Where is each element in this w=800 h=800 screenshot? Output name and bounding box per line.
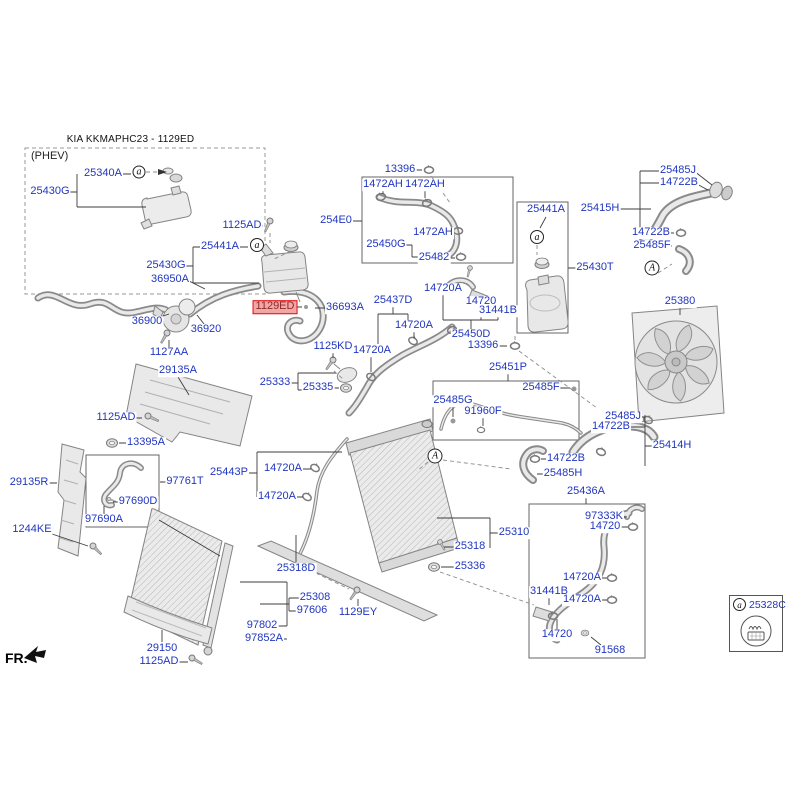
part-label-97690a: 97690A — [84, 514, 124, 526]
legend-row: a 25328C — [730, 596, 782, 611]
part-label-25380: 25380 — [664, 296, 697, 308]
part-label-14720: 14720 — [589, 521, 622, 533]
part-label-14722b: 14722B — [546, 453, 586, 465]
part-label-25441a: 25441A — [200, 241, 240, 253]
part-label-25310: 25310 — [498, 527, 531, 539]
part-label-25308: 25308 — [299, 592, 332, 604]
part-label-25318d: 25318D — [276, 563, 317, 575]
legend-callout-marker: a — [733, 598, 746, 611]
part-label-14720a: 14720A — [562, 572, 602, 584]
part-label-97690d: 97690D — [118, 496, 159, 508]
labels-layer: KIA KKMAPHC23 - 1129ED (PHEV) FR. a 2532… — [0, 0, 800, 800]
part-label-25443p: 25443P — [209, 467, 249, 479]
part-label-36900: 36900 — [131, 316, 164, 328]
part-label-1125ad: 1125AD — [96, 412, 137, 424]
part-label-14720a: 14720A — [352, 345, 392, 357]
part-label-25335: 25335 — [302, 382, 335, 394]
legend-box: a 25328C — [729, 595, 783, 652]
part-label-25485f: 25485F — [632, 240, 671, 252]
part-label-36693a: 36693A — [325, 302, 365, 314]
parts-diagram: KIA KKMAPHC23 - 1129ED (PHEV) FR. a 2532… — [0, 0, 800, 800]
part-label-1472ah: 1472AH — [412, 227, 454, 239]
part-label-25441a: 25441A — [526, 204, 566, 216]
part-label-91960f: 91960F — [463, 406, 502, 418]
part-label-97761t: 97761T — [165, 476, 204, 488]
callout-marker-a: a — [133, 166, 146, 179]
part-label-36920: 36920 — [190, 324, 223, 336]
part-label-25336: 25336 — [454, 561, 487, 573]
part-label-36950a: 36950A — [150, 274, 190, 286]
part-label-25485f: 25485F — [521, 382, 560, 394]
part-label-14720a: 14720A — [562, 594, 602, 606]
part-label-97802: 97802 — [246, 620, 279, 632]
part-label-25485j: 25485J — [659, 165, 697, 177]
part-label-25333: 25333 — [259, 377, 292, 389]
part-label-97852a: 97852A — [244, 633, 284, 645]
part-label-14722b: 14722B — [631, 227, 671, 239]
part-label-25430g: 25430G — [29, 186, 70, 198]
legend-part-number: 25328C — [749, 599, 786, 611]
part-label-25340a: 25340A — [83, 168, 123, 180]
part-label-25430g: 25430G — [145, 260, 186, 272]
part-label-1129ey: 1129EY — [338, 607, 378, 619]
part-label-14722b: 14722B — [659, 177, 699, 189]
part-label-14720a: 14720A — [423, 283, 463, 295]
part-label-1472ah: 1472AH — [404, 179, 446, 191]
part-label-31441b: 31441B — [478, 305, 518, 317]
part-label-25482: 25482 — [418, 252, 451, 264]
part-label-254e0: 254E0 — [319, 215, 353, 227]
part-label-13396: 13396 — [384, 164, 417, 176]
part-label-91568: 91568 — [594, 645, 627, 657]
part-label-1125ad: 1125AD — [139, 656, 180, 668]
fr-direction-label: FR. — [5, 650, 28, 666]
part-label-25485h: 25485H — [543, 468, 584, 480]
part-label-25436a: 25436A — [566, 486, 606, 498]
part-label-14720a: 14720A — [263, 463, 303, 475]
callout-marker-A: A — [645, 261, 660, 276]
part-label-25451p: 25451P — [488, 362, 528, 374]
part-label-1129ed: 1129ED — [253, 300, 298, 314]
part-label-14720a: 14720A — [257, 491, 297, 503]
part-label-14720a: 14720A — [394, 320, 434, 332]
diagram-title: KIA KKMAPHC23 - 1129ED — [38, 134, 223, 145]
part-label-25415h: 25415H — [580, 203, 621, 215]
part-label-14720: 14720 — [541, 629, 574, 641]
part-label-25450g: 25450G — [365, 239, 406, 251]
part-label-97606: 97606 — [296, 605, 329, 617]
callout-marker-a: a — [250, 238, 264, 252]
part-label-1127aa: 1127AA — [149, 347, 189, 359]
part-label-1472ah: 1472AH — [362, 179, 404, 191]
callout-marker-A: A — [428, 449, 443, 464]
part-label-29135r: 29135R — [9, 477, 50, 489]
part-label-1244ke: 1244KE — [11, 524, 52, 536]
part-label-13395a: 13395A — [126, 437, 166, 449]
part-label-25430t: 25430T — [575, 262, 614, 274]
phev-variant-label: (PHEV) — [31, 150, 68, 162]
callout-marker-a: a — [530, 230, 544, 244]
part-label-14722b: 14722B — [591, 421, 631, 433]
part-label-25437d: 25437D — [373, 295, 414, 307]
part-label-29150: 29150 — [146, 643, 179, 655]
part-label-1125kd: 1125KD — [313, 341, 354, 353]
part-label-25414h: 25414H — [652, 440, 693, 452]
part-label-1125ad: 1125AD — [222, 220, 263, 232]
part-label-29135a: 29135A — [158, 365, 198, 377]
part-label-25318: 25318 — [454, 541, 487, 553]
part-label-13396: 13396 — [467, 340, 500, 352]
